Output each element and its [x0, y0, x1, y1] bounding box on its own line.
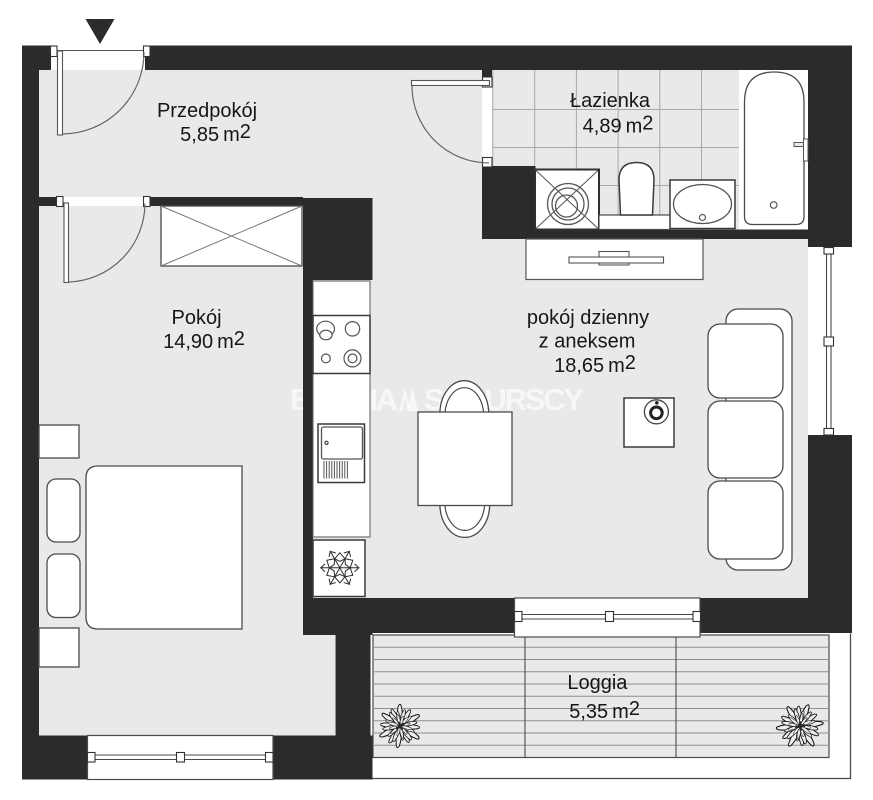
svg-text:4,89 m2: 4,89 m2 — [583, 113, 654, 138]
svg-text:5,85 m2: 5,85 m2 — [180, 121, 251, 146]
svg-text:Łazienka: Łazienka — [570, 90, 651, 112]
svg-text:pokój dzienny: pokój dzienny — [527, 307, 649, 329]
svg-text:14,90 m2: 14,90 m2 — [163, 328, 245, 353]
svg-text:z aneksem: z aneksem — [539, 331, 636, 353]
svg-text:5,35 m2: 5,35 m2 — [569, 698, 640, 723]
svg-text:Pokój: Pokój — [171, 307, 221, 329]
svg-text:Przedpokój: Przedpokój — [157, 100, 257, 122]
svg-text:Loggia: Loggia — [567, 672, 628, 694]
svg-text:18,65 m2: 18,65 m2 — [554, 352, 636, 377]
